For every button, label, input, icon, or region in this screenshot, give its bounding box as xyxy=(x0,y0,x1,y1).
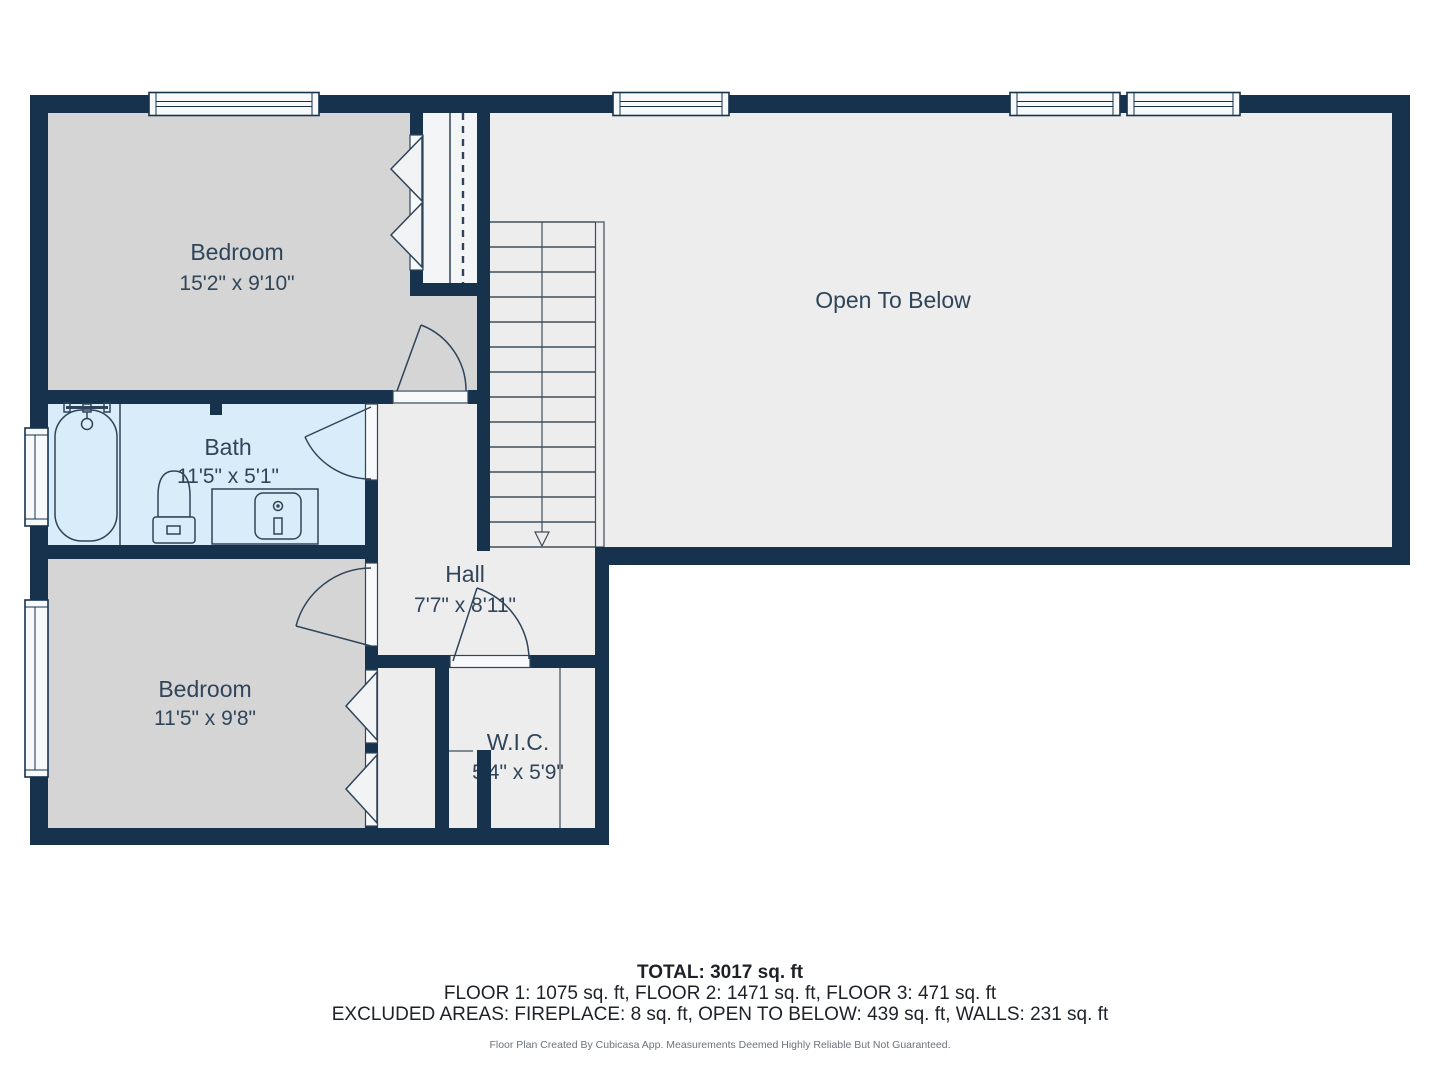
total-area-text: TOTAL: 3017 sq. ft xyxy=(0,962,1440,983)
wall-closet-top-stub-lower xyxy=(410,270,423,283)
wall-bedroom-top-bottom-left xyxy=(30,390,393,404)
dims-hall: 7'7" x 8'11" xyxy=(414,594,516,617)
label-open-to-below: Open To Below xyxy=(815,287,971,313)
dims-bedroom-top: 15'2" x 9'10" xyxy=(179,272,294,295)
wall-closet-top-stub-upper xyxy=(410,113,423,135)
wall-plan-bottom xyxy=(30,828,609,845)
wall-hall-bottom-right xyxy=(530,655,609,668)
floor-areas-text: FLOOR 1: 1075 sq. ft, FLOOR 2: 1471 sq. … xyxy=(0,983,1440,1004)
wall-wic-stub xyxy=(477,750,491,845)
wall-hall-left-upper xyxy=(365,480,378,563)
dims-bath: 11'5" x 5'1" xyxy=(177,465,279,488)
open-to-below-floor xyxy=(490,113,1392,547)
floor-plan-drawing: Bedroom 15'2" x 9'10" Open To Below Bath… xyxy=(0,0,1440,1080)
floor-plan-page: Bedroom 15'2" x 9'10" Open To Below Bath… xyxy=(0,0,1440,1080)
label-wic: W.I.C. xyxy=(487,729,550,755)
wall-bifold-center-post xyxy=(365,743,378,753)
dims-bedroom-bottom: 11'5" x 9'8" xyxy=(154,707,256,730)
window-top-2 xyxy=(613,93,729,116)
wall-hall-wic-right xyxy=(595,547,609,845)
label-hall: Hall xyxy=(445,561,485,587)
wall-open-below-bottom xyxy=(595,547,1410,565)
wall-closet-top-bottom xyxy=(410,283,490,296)
label-bedroom-top: Bedroom xyxy=(190,239,283,265)
label-bedroom-bottom: Bedroom xyxy=(158,676,251,702)
summary-footer: TOTAL: 3017 sq. ft FLOOR 1: 1075 sq. ft,… xyxy=(0,962,1440,1052)
wall-bath-bedroom xyxy=(30,545,378,559)
excluded-areas-text: EXCLUDED AREAS: FIREPLACE: 8 sq. ft, OPE… xyxy=(0,1004,1440,1025)
label-bath: Bath xyxy=(204,434,251,460)
wall-stair-left xyxy=(477,95,490,551)
wall-closet-bottom-stub xyxy=(365,826,378,845)
window-bedroom-bottom-left xyxy=(25,600,48,777)
wall-closet-wic-divider xyxy=(435,668,449,828)
window-bath-left xyxy=(25,428,48,526)
wall-right xyxy=(1392,95,1410,565)
wall-hall-bottom-left xyxy=(365,655,450,668)
window-top-4 xyxy=(1127,93,1240,116)
window-top-1 xyxy=(149,93,319,116)
window-top-3 xyxy=(1010,93,1120,116)
wall-bath-tick xyxy=(210,404,222,415)
closet-bottom-floor xyxy=(378,668,435,828)
disclaimer-text: Floor Plan Created By Cubicasa App. Meas… xyxy=(0,1039,1440,1052)
